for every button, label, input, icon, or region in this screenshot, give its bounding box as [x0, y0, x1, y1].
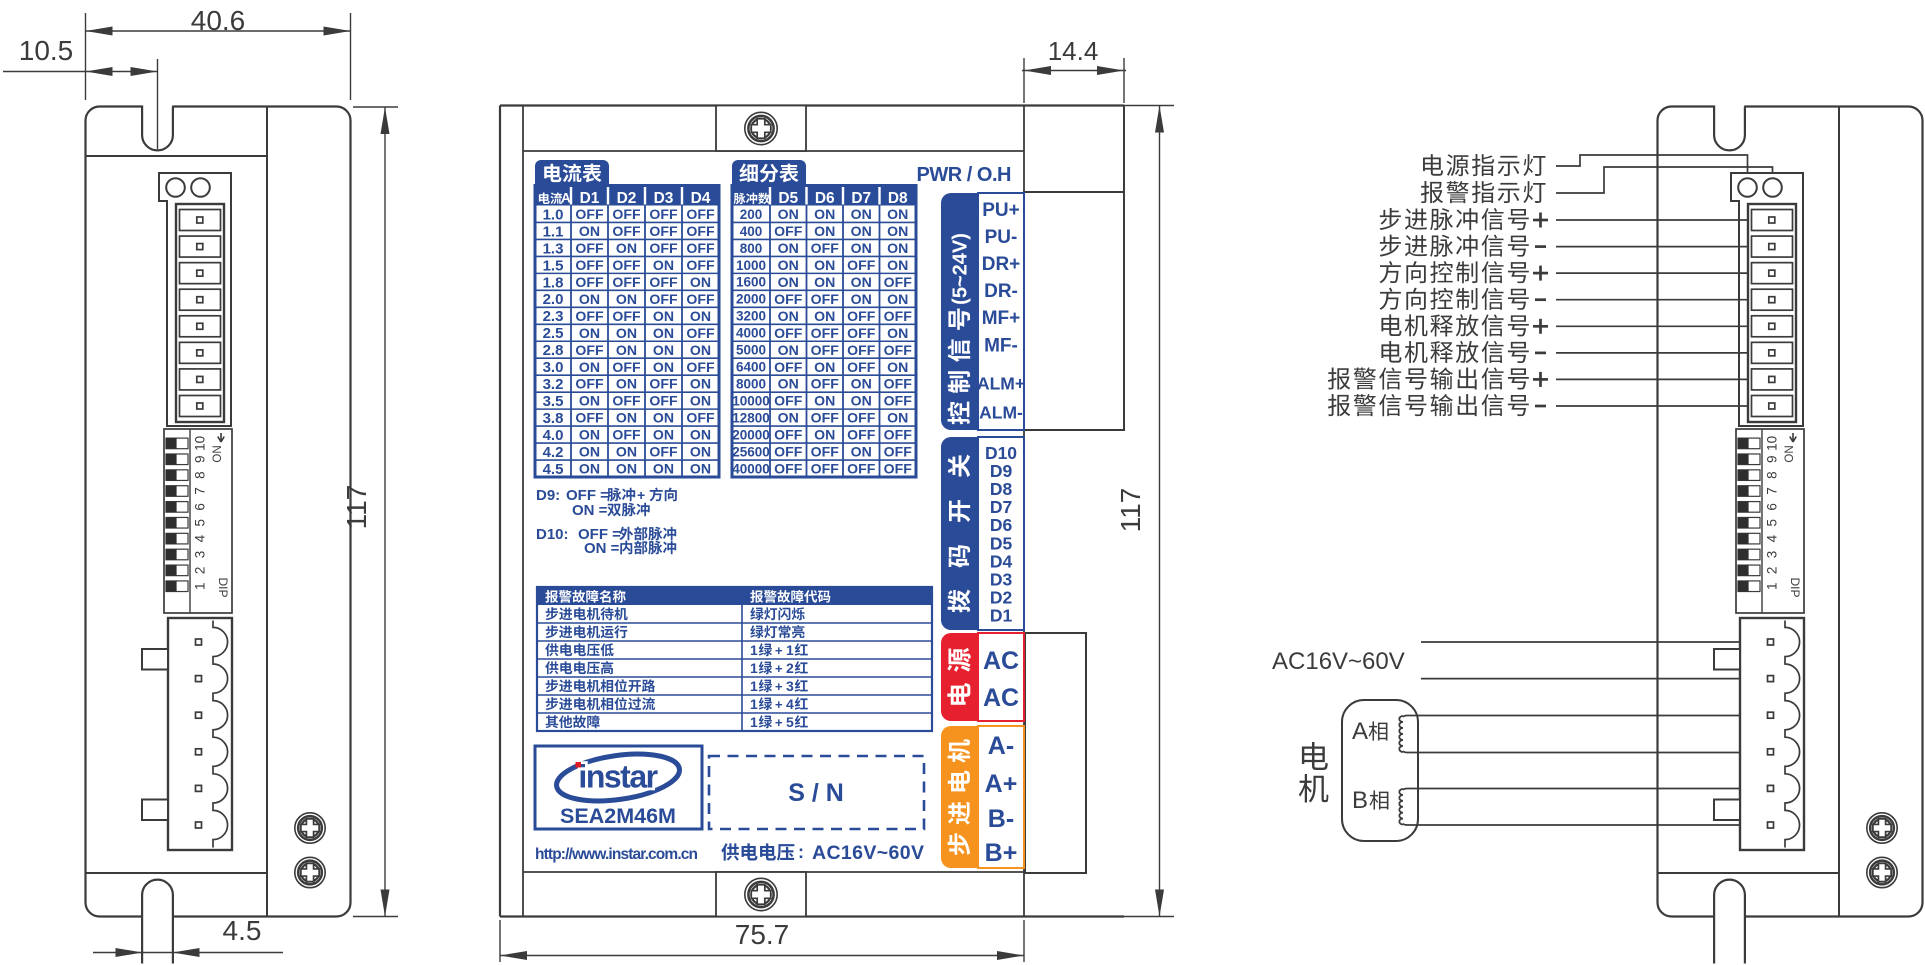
- svg-text:4.2: 4.2: [543, 444, 564, 461]
- svg-text:ON: ON: [778, 274, 799, 290]
- svg-text:D10:: D10:: [536, 526, 569, 543]
- svg-text:OFF: OFF: [811, 410, 840, 426]
- svg-text:10000: 10000: [732, 394, 770, 409]
- svg-text:ON: ON: [778, 342, 799, 358]
- svg-text:D9:: D9:: [536, 487, 560, 504]
- svg-text:OFF: OFF: [811, 376, 840, 392]
- svg-text:OFF: OFF: [686, 257, 715, 273]
- svg-text:7: 7: [193, 487, 208, 495]
- svg-text:ON: ON: [579, 325, 600, 341]
- svg-text:ON =: ON =: [584, 540, 620, 557]
- svg-text:OFF: OFF: [649, 223, 678, 239]
- svg-text:S / N: S / N: [788, 779, 844, 807]
- svg-text:OFF: OFF: [649, 376, 678, 392]
- svg-text:+: +: [775, 643, 783, 658]
- svg-text:5: 5: [786, 714, 794, 730]
- svg-text:DIP: DIP: [1788, 577, 1802, 597]
- svg-text:ON: ON: [579, 393, 600, 409]
- svg-text:OFF: OFF: [575, 410, 604, 426]
- svg-text:OFF: OFF: [649, 393, 678, 409]
- svg-text:D2: D2: [990, 588, 1013, 608]
- svg-text:D8: D8: [888, 190, 908, 207]
- svg-text:10.5: 10.5: [19, 35, 74, 66]
- svg-text:D3: D3: [654, 190, 674, 207]
- svg-text:1600: 1600: [736, 275, 766, 290]
- svg-text:D6: D6: [815, 190, 835, 207]
- svg-text:1: 1: [750, 714, 758, 730]
- svg-text:OFF: OFF: [649, 206, 678, 222]
- svg-text:D4: D4: [990, 551, 1013, 571]
- svg-text:OFF: OFF: [575, 240, 604, 256]
- svg-text:ON: ON: [579, 223, 600, 239]
- svg-text:12800: 12800: [732, 410, 770, 425]
- svg-text:10: 10: [1765, 436, 1780, 451]
- svg-text:OFF: OFF: [612, 206, 641, 222]
- svg-text:OFF: OFF: [612, 257, 641, 273]
- svg-text:ON: ON: [616, 342, 637, 358]
- svg-text:OFF: OFF: [811, 325, 840, 341]
- svg-text:OFF: OFF: [811, 444, 840, 460]
- svg-text:3200: 3200: [736, 309, 766, 324]
- svg-text:1.8: 1.8: [543, 274, 564, 291]
- svg-text:ON: ON: [690, 342, 711, 358]
- svg-text:+: +: [775, 697, 783, 712]
- svg-text:40000: 40000: [732, 461, 770, 476]
- svg-text:D6: D6: [990, 515, 1013, 535]
- svg-text:1: 1: [750, 642, 758, 658]
- svg-text:4.0: 4.0: [543, 427, 564, 444]
- svg-text:OFF: OFF: [884, 376, 913, 392]
- svg-text:3.8: 3.8: [543, 410, 564, 427]
- svg-text:OFF: OFF: [649, 444, 678, 460]
- svg-text:ON: ON: [814, 274, 835, 290]
- svg-text:ON: ON: [579, 427, 600, 443]
- svg-text:200: 200: [740, 207, 763, 222]
- svg-text:5: 5: [1765, 519, 1780, 527]
- svg-text:OFF: OFF: [612, 308, 641, 324]
- svg-text:3: 3: [786, 678, 794, 694]
- svg-text:B-: B-: [988, 805, 1014, 833]
- svg-text:ON: ON: [887, 257, 908, 273]
- svg-text:ON: ON: [814, 427, 835, 443]
- svg-text:1.3: 1.3: [543, 240, 564, 257]
- svg-text:OFF: OFF: [884, 274, 913, 290]
- svg-text:PU-: PU-: [985, 227, 1018, 248]
- svg-text:OFF: OFF: [847, 257, 876, 273]
- svg-text:6400: 6400: [736, 360, 766, 375]
- svg-text:4: 4: [193, 534, 208, 542]
- svg-text:75.7: 75.7: [735, 919, 790, 950]
- svg-text:MF+: MF+: [982, 308, 1021, 329]
- svg-text:MF-: MF-: [984, 335, 1018, 356]
- svg-text:117: 117: [1115, 488, 1146, 533]
- svg-text:6: 6: [1765, 503, 1780, 511]
- svg-text:3.2: 3.2: [543, 376, 564, 393]
- svg-text:D5: D5: [778, 190, 798, 207]
- svg-text:1: 1: [1765, 582, 1780, 590]
- svg-text:OFF: OFF: [612, 359, 641, 375]
- svg-text:ON: ON: [778, 240, 799, 256]
- svg-text:OFF: OFF: [774, 291, 803, 307]
- svg-text:ON: ON: [814, 308, 835, 324]
- svg-text:ON: ON: [814, 223, 835, 239]
- svg-text:SEA2M46M: SEA2M46M: [560, 804, 676, 828]
- svg-text:ON: ON: [778, 257, 799, 273]
- svg-text:3.5: 3.5: [543, 393, 564, 410]
- svg-text:ON: ON: [616, 240, 637, 256]
- svg-text:3: 3: [193, 551, 208, 559]
- svg-text:400: 400: [740, 224, 763, 239]
- svg-text:OFF: OFF: [649, 274, 678, 290]
- svg-text:2.8: 2.8: [543, 342, 564, 359]
- svg-text:OFF: OFF: [612, 223, 641, 239]
- svg-text:3.0: 3.0: [543, 359, 564, 376]
- svg-text:ON: ON: [851, 376, 872, 392]
- svg-text:ON: ON: [579, 291, 600, 307]
- svg-text:A: A: [1352, 718, 1368, 745]
- svg-text:OFF: OFF: [884, 308, 913, 324]
- svg-text:1: 1: [750, 660, 758, 676]
- svg-text:8: 8: [1765, 471, 1780, 479]
- svg-text:OFF: OFF: [575, 274, 604, 290]
- svg-text:OFF: OFF: [774, 427, 803, 443]
- svg-text:ON: ON: [616, 444, 637, 460]
- svg-text:instar: instar: [578, 759, 657, 795]
- svg-text:ON: ON: [653, 308, 674, 324]
- svg-text:ON: ON: [851, 393, 872, 409]
- svg-text:117: 117: [341, 485, 372, 530]
- svg-text:ON: ON: [616, 376, 637, 392]
- svg-text:ON: ON: [653, 359, 674, 375]
- svg-text:OFF: OFF: [884, 461, 913, 477]
- svg-text:ON: ON: [579, 444, 600, 460]
- svg-text:ALM+: ALM+: [977, 373, 1025, 393]
- svg-text:1.0: 1.0: [543, 206, 564, 223]
- svg-text:5: 5: [193, 519, 208, 527]
- svg-text:2.0: 2.0: [543, 291, 564, 308]
- svg-text::: :: [798, 842, 804, 862]
- svg-text:ON: ON: [778, 376, 799, 392]
- svg-text:OFF: OFF: [847, 410, 876, 426]
- svg-text:ON: ON: [616, 461, 637, 477]
- svg-text:2: 2: [1765, 567, 1780, 575]
- svg-text:OFF: OFF: [811, 461, 840, 477]
- svg-text:OFF: OFF: [612, 393, 641, 409]
- svg-text:2.3: 2.3: [543, 308, 564, 325]
- svg-text:ON: ON: [814, 393, 835, 409]
- svg-text:OFF: OFF: [847, 427, 876, 443]
- svg-text:OFF: OFF: [649, 291, 678, 307]
- svg-text:D10: D10: [985, 443, 1017, 463]
- svg-text:OFF: OFF: [575, 257, 604, 273]
- svg-text:(5~24V): (5~24V): [950, 233, 972, 305]
- svg-text:OFF: OFF: [649, 240, 678, 256]
- svg-text:ON: ON: [212, 445, 224, 462]
- svg-text:ON: ON: [851, 240, 872, 256]
- svg-text:2: 2: [193, 567, 208, 575]
- svg-text:+: +: [775, 715, 783, 730]
- svg-text:4: 4: [1765, 534, 1780, 542]
- svg-text:OFF: OFF: [811, 291, 840, 307]
- svg-text:AC: AC: [983, 684, 1019, 712]
- svg-text:D4: D4: [691, 190, 711, 207]
- svg-text:ON: ON: [653, 257, 674, 273]
- svg-text:OFF: OFF: [884, 444, 913, 460]
- svg-text:5000: 5000: [736, 343, 766, 358]
- svg-text:ON: ON: [851, 444, 872, 460]
- svg-text:ON: ON: [690, 393, 711, 409]
- svg-text:ON: ON: [778, 308, 799, 324]
- svg-text:OFF: OFF: [575, 206, 604, 222]
- svg-text:14.4: 14.4: [1048, 36, 1099, 66]
- svg-text:2: 2: [786, 660, 794, 676]
- svg-text:OFF: OFF: [774, 461, 803, 477]
- svg-text:ON: ON: [690, 461, 711, 477]
- svg-text:OFF: OFF: [575, 342, 604, 358]
- svg-text:40.6: 40.6: [191, 5, 246, 36]
- svg-text:ON: ON: [778, 206, 799, 222]
- svg-text:ON: ON: [778, 410, 799, 426]
- svg-text:D9: D9: [990, 461, 1013, 481]
- svg-text:ON: ON: [653, 342, 674, 358]
- svg-text:ON: ON: [579, 359, 600, 375]
- svg-text:ON: ON: [887, 240, 908, 256]
- svg-text:800: 800: [740, 241, 763, 256]
- svg-text:ON: ON: [851, 274, 872, 290]
- svg-text:ON: ON: [616, 325, 637, 341]
- svg-text:OFF: OFF: [811, 240, 840, 256]
- svg-text:OFF: OFF: [774, 393, 803, 409]
- svg-text:B+: B+: [985, 839, 1018, 867]
- svg-text:OFF: OFF: [847, 325, 876, 341]
- svg-text:9: 9: [193, 456, 208, 464]
- svg-text:ON: ON: [579, 461, 600, 477]
- svg-text:ON: ON: [616, 291, 637, 307]
- svg-text:+: +: [637, 487, 645, 503]
- svg-text:ON: ON: [814, 206, 835, 222]
- svg-text:1000: 1000: [736, 258, 766, 273]
- svg-text:OFF: OFF: [686, 291, 715, 307]
- svg-text:25600: 25600: [732, 444, 770, 459]
- svg-text:D1: D1: [580, 190, 600, 207]
- svg-text:8: 8: [193, 471, 208, 479]
- svg-text:D3: D3: [990, 570, 1013, 590]
- svg-text:ON: ON: [814, 257, 835, 273]
- svg-text:2.5: 2.5: [543, 325, 564, 342]
- svg-text:ON: ON: [887, 206, 908, 222]
- svg-text:OFF: OFF: [847, 342, 876, 358]
- svg-text:DR+: DR+: [982, 254, 1021, 275]
- svg-text:ON: ON: [887, 359, 908, 375]
- svg-text:ON: ON: [690, 376, 711, 392]
- svg-text:D7: D7: [990, 497, 1012, 517]
- svg-text:OFF: OFF: [847, 308, 876, 324]
- svg-text:D8: D8: [990, 479, 1013, 499]
- svg-text:OFF: OFF: [847, 359, 876, 375]
- svg-text:ON: ON: [814, 359, 835, 375]
- svg-text:4.5: 4.5: [543, 461, 564, 478]
- svg-text:ON: ON: [653, 410, 674, 426]
- svg-text:PU+: PU+: [982, 200, 1020, 221]
- svg-text:OFF: OFF: [847, 461, 876, 477]
- svg-text:http://www.instar.com.cn: http://www.instar.com.cn: [535, 846, 698, 863]
- svg-text:4: 4: [786, 696, 794, 712]
- svg-text:A-: A-: [988, 732, 1014, 760]
- svg-text:OFF: OFF: [774, 444, 803, 460]
- svg-text:ON: ON: [887, 291, 908, 307]
- svg-text:1: 1: [750, 678, 758, 694]
- svg-text:4000: 4000: [736, 326, 766, 341]
- svg-text:OFF: OFF: [612, 274, 641, 290]
- svg-text:7: 7: [1765, 487, 1780, 495]
- svg-text:ON: ON: [851, 291, 872, 307]
- svg-text:OFF: OFF: [884, 427, 913, 443]
- svg-text:D1: D1: [990, 606, 1013, 626]
- svg-text:AC: AC: [983, 647, 1019, 675]
- svg-text:A: A: [561, 191, 571, 206]
- svg-text:1: 1: [750, 696, 758, 712]
- svg-text:D5: D5: [990, 533, 1013, 553]
- svg-text:B: B: [1352, 787, 1368, 814]
- svg-text:ON: ON: [653, 461, 674, 477]
- svg-text:+: +: [775, 661, 783, 676]
- svg-text:OFF: OFF: [884, 393, 913, 409]
- svg-text:OFF: OFF: [774, 325, 803, 341]
- svg-text:OFF: OFF: [686, 359, 715, 375]
- svg-text:DIP: DIP: [216, 577, 230, 597]
- svg-text:ON: ON: [851, 223, 872, 239]
- svg-text:A+: A+: [985, 770, 1018, 798]
- svg-text:1.1: 1.1: [543, 223, 564, 240]
- svg-text:ALM-: ALM-: [979, 402, 1023, 422]
- svg-text:ON: ON: [887, 223, 908, 239]
- svg-text:20000: 20000: [732, 427, 770, 442]
- svg-text:OFF: OFF: [884, 342, 913, 358]
- svg-text:1: 1: [786, 642, 794, 658]
- svg-text:2000: 2000: [736, 292, 766, 307]
- svg-text:ON: ON: [653, 325, 674, 341]
- svg-text:OFF: OFF: [575, 308, 604, 324]
- svg-text:ON: ON: [653, 427, 674, 443]
- svg-text:OFF: OFF: [686, 206, 715, 222]
- svg-text:ON: ON: [690, 274, 711, 290]
- svg-text:PWR / O.H: PWR / O.H: [917, 164, 1012, 186]
- svg-text:1.5: 1.5: [543, 257, 564, 274]
- svg-text:ON: ON: [690, 427, 711, 443]
- svg-text:OFF: OFF: [811, 342, 840, 358]
- svg-text:D7: D7: [851, 190, 871, 207]
- svg-text:4.5: 4.5: [223, 915, 262, 946]
- svg-text:ON: ON: [690, 308, 711, 324]
- svg-text:AC16V~60V: AC16V~60V: [812, 842, 924, 864]
- svg-text:OFF: OFF: [575, 376, 604, 392]
- svg-text:OFF: OFF: [774, 223, 803, 239]
- svg-text:+: +: [775, 679, 783, 694]
- svg-text:9: 9: [1765, 456, 1780, 464]
- svg-text:OFF: OFF: [612, 427, 641, 443]
- svg-text:OFF: OFF: [686, 410, 715, 426]
- svg-text:ON: ON: [887, 410, 908, 426]
- svg-text:AC16V~60V: AC16V~60V: [1272, 648, 1405, 675]
- svg-text:ON =: ON =: [572, 502, 608, 519]
- svg-text:ON: ON: [1784, 445, 1796, 462]
- svg-text:OFF: OFF: [686, 240, 715, 256]
- svg-text:6: 6: [193, 503, 208, 511]
- svg-text:OFF: OFF: [686, 223, 715, 239]
- svg-text:ON: ON: [851, 206, 872, 222]
- svg-text:10: 10: [193, 436, 208, 451]
- svg-text:ON: ON: [887, 325, 908, 341]
- svg-text:ON: ON: [616, 410, 637, 426]
- svg-text:OFF: OFF: [686, 325, 715, 341]
- svg-text:3: 3: [1765, 551, 1780, 559]
- svg-text:OFF: OFF: [774, 359, 803, 375]
- svg-text:DR-: DR-: [984, 281, 1018, 302]
- svg-text:8000: 8000: [736, 377, 766, 392]
- svg-text:ON: ON: [690, 444, 711, 460]
- svg-text:1: 1: [193, 582, 208, 590]
- svg-text:D2: D2: [617, 190, 637, 207]
